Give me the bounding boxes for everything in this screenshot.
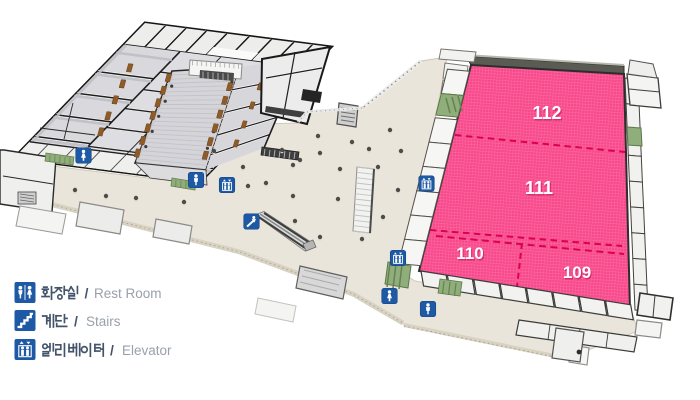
- svg-text:Stairs: Stairs: [86, 314, 121, 329]
- svg-text:112: 112: [532, 103, 561, 123]
- svg-text:Elevator: Elevator: [122, 343, 172, 358]
- svg-text:/: /: [85, 285, 89, 301]
- svg-text:Rest Room: Rest Room: [94, 286, 162, 301]
- svg-text:/: /: [74, 313, 78, 329]
- svg-text:109: 109: [563, 263, 591, 282]
- svg-text:/: /: [110, 342, 114, 358]
- svg-text:110: 110: [456, 244, 483, 263]
- svg-text:111: 111: [525, 178, 553, 198]
